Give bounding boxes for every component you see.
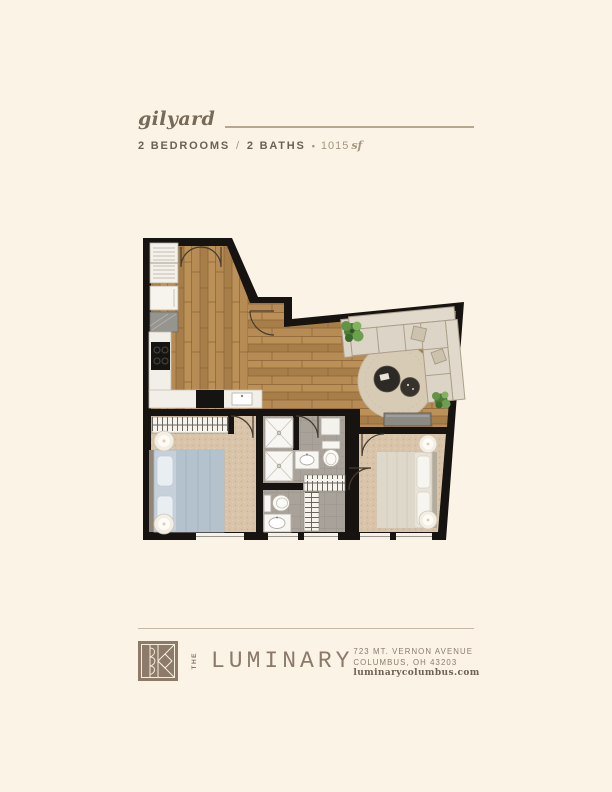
title-row: gilyard — [138, 110, 474, 129]
address-line2: COLUMBUS, OH 43203 — [353, 657, 479, 668]
floor-plan-figure — [138, 230, 478, 548]
shower-2 — [265, 451, 293, 481]
address-line1: 723 MT. VERNON AVENUE — [353, 646, 479, 657]
shower-1 — [265, 418, 293, 448]
toilet-2 — [264, 495, 290, 512]
toilet-1 — [322, 441, 340, 467]
media-console — [384, 413, 431, 426]
laundry-stack — [150, 243, 178, 283]
plan-header: gilyard 2 BEDROOMS / 2 BATHS • 1015 sf — [138, 110, 474, 152]
footer-rule — [138, 628, 474, 629]
bedrooms-label: 2 BEDROOMS — [138, 140, 230, 152]
spec-bullet: • — [312, 141, 315, 151]
brand-the: THE — [191, 652, 198, 670]
refrigerator — [150, 286, 178, 310]
address-block: 723 MT. VERNON AVENUE COLUMBUS, OH 43203… — [353, 644, 479, 679]
flyer-page: gilyard 2 BEDROOMS / 2 BATHS • 1015 sf — [0, 0, 612, 792]
area-unit: sf — [351, 139, 362, 152]
stove — [151, 342, 170, 370]
plan-specs: 2 BEDROOMS / 2 BATHS • 1015 sf — [138, 139, 474, 152]
area-value: 1015 — [321, 140, 349, 152]
title-rule — [225, 126, 474, 128]
baths-label: 2 BATHS — [247, 140, 306, 152]
windows — [196, 533, 432, 540]
page-title: gilyard — [138, 110, 215, 129]
flyer-footer: THE LUMINARY 723 MT. VERNON AVENUE COLUM… — [138, 628, 474, 681]
kitchen-sink-appliance — [196, 390, 252, 408]
luminary-logo-icon — [138, 641, 178, 681]
linen-cabinet — [321, 418, 340, 435]
website-url: luminarycolumbus.com — [353, 668, 479, 679]
floor-plan — [138, 230, 478, 548]
vanity-2 — [264, 514, 291, 532]
closet-bedroom-left — [152, 417, 228, 433]
vanity-1 — [295, 451, 319, 469]
spec-separator: / — [236, 140, 241, 152]
brand-row: THE LUMINARY 723 MT. VERNON AVENUE COLUM… — [138, 641, 474, 681]
brand-name: LUMINARY — [211, 648, 353, 674]
